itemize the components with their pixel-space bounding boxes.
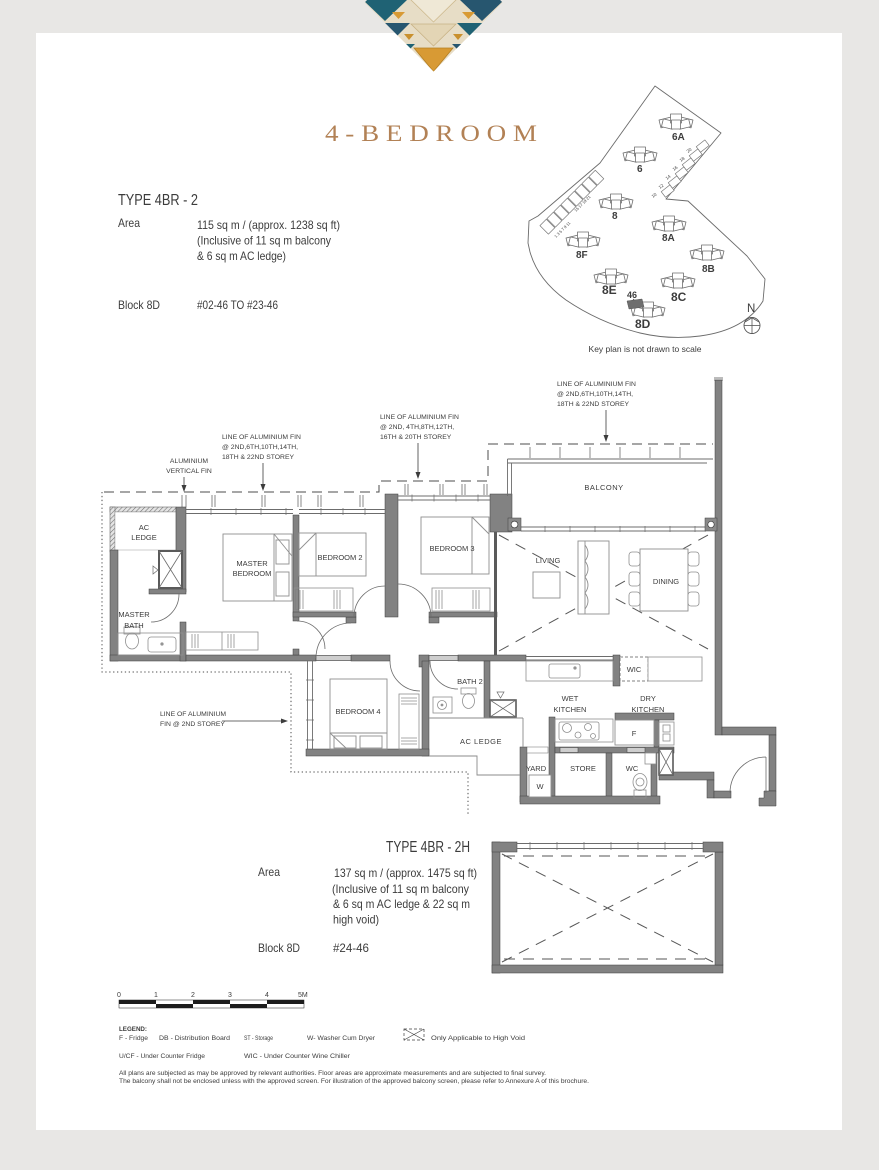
svg-text:F - Fridge: F - Fridge	[119, 1035, 148, 1042]
svg-text:AC: AC	[139, 523, 150, 532]
svg-text:AC LEDGE: AC LEDGE	[460, 737, 502, 746]
svg-text:Area: Area	[118, 216, 140, 230]
svg-text:W- Washer Cum Dryer: W- Washer Cum Dryer	[307, 1035, 376, 1042]
svg-text:2: 2	[191, 992, 195, 999]
svg-text:@ 2ND,6TH,10TH,14TH,: @ 2ND,6TH,10TH,14TH,	[557, 391, 633, 398]
svg-text:3: 3	[228, 992, 232, 999]
svg-text:@ 2ND, 4TH,8TH,12TH,: @ 2ND, 4TH,8TH,12TH,	[380, 424, 454, 431]
svg-text:8E: 8E	[602, 283, 617, 297]
svg-text:BEDROOM 2: BEDROOM 2	[317, 553, 362, 562]
svg-text:BATH: BATH	[124, 621, 143, 630]
svg-text:U/CF - Under Counter Fridge: U/CF - Under Counter Fridge	[119, 1053, 205, 1060]
svg-text:8: 8	[612, 211, 618, 222]
svg-text:BALCONY: BALCONY	[584, 483, 623, 492]
svg-text:ALUMINIUM: ALUMINIUM	[170, 458, 208, 465]
svg-text:BEDROOM 4: BEDROOM 4	[335, 707, 380, 716]
svg-text:MASTER: MASTER	[118, 610, 150, 619]
svg-text:1: 1	[154, 992, 158, 999]
svg-text:high void): high void)	[333, 913, 379, 927]
svg-text:DB - Distribution Board: DB - Distribution Board	[159, 1035, 230, 1042]
svg-text:4 - B E D R O O M: 4 - B E D R O O M	[325, 121, 537, 146]
svg-text:LIVING: LIVING	[536, 556, 561, 565]
svg-text:6: 6	[637, 164, 643, 175]
svg-text:8A: 8A	[662, 233, 675, 244]
svg-text:& 6 sq m AC ledge): & 6 sq m AC ledge)	[197, 249, 286, 263]
svg-text:LINE OF ALUMINIUM: LINE OF ALUMINIUM	[160, 711, 226, 718]
svg-text:& 6 sq m AC ledge & 22 sq m: & 6 sq m AC ledge & 22 sq m	[333, 897, 470, 911]
svg-text:LINE OF ALUMINIUM FIN: LINE OF ALUMINIUM FIN	[380, 414, 459, 421]
svg-text:N: N	[747, 303, 755, 315]
svg-text:KITCHEN: KITCHEN	[632, 705, 665, 714]
svg-text:TYPE 4BR - 2H: TYPE 4BR - 2H	[386, 839, 470, 856]
svg-text:8C: 8C	[671, 290, 687, 304]
svg-text:46: 46	[627, 290, 637, 300]
svg-text:(Inclusive of 11 sq m balcony: (Inclusive of 11 sq m balcony	[332, 882, 469, 896]
svg-text:Only Applicable to High Void: Only Applicable to High Void	[431, 1035, 525, 1042]
svg-text:18TH & 22ND STOREY: 18TH & 22ND STOREY	[557, 401, 629, 408]
svg-text:16: 16	[672, 164, 679, 171]
svg-text:KITCHEN: KITCHEN	[554, 705, 587, 714]
svg-text:18TH & 22ND STOREY: 18TH & 22ND STOREY	[222, 454, 294, 461]
svg-text:BATH 2: BATH 2	[457, 677, 483, 686]
svg-text:5M: 5M	[298, 992, 308, 999]
svg-text:115 sq m / (approx. 1238 sq ft: 115 sq m / (approx. 1238 sq ft)	[197, 218, 340, 232]
svg-text:BEDROOM 3: BEDROOM 3	[429, 544, 474, 553]
svg-text:F: F	[632, 729, 637, 738]
svg-text:8F: 8F	[576, 250, 588, 261]
svg-text:TYPE 4BR - 2: TYPE 4BR - 2	[118, 192, 198, 209]
svg-text:Area: Area	[258, 865, 280, 879]
svg-text:8D: 8D	[635, 317, 651, 331]
svg-text:Block 8D: Block 8D	[258, 941, 300, 955]
svg-text:WIC: WIC	[627, 665, 642, 674]
svg-text:137 sq m / (approx. 1475 sq ft: 137 sq m / (approx. 1475 sq ft)	[334, 866, 477, 880]
svg-text:LEGEND:: LEGEND:	[119, 1026, 147, 1033]
svg-text:WIC - Under Counter Wine Chill: WIC - Under Counter Wine Chiller	[244, 1053, 351, 1060]
svg-text:DINING: DINING	[653, 577, 679, 586]
svg-text:@ 2ND,6TH,10TH,14TH,: @ 2ND,6TH,10TH,14TH,	[222, 444, 298, 451]
svg-text:VERTICAL FIN: VERTICAL FIN	[166, 468, 212, 475]
svg-text:6A: 6A	[672, 132, 685, 143]
svg-text:Key plan is not drawn to scale: Key plan is not drawn to scale	[589, 344, 702, 354]
svg-text:12: 12	[658, 182, 665, 189]
svg-text:Block 8D: Block 8D	[118, 298, 160, 312]
svg-text:LEDGE: LEDGE	[131, 533, 156, 542]
svg-text:#24-46: #24-46	[333, 941, 369, 955]
svg-text:18: 18	[679, 155, 686, 162]
svg-text:4: 4	[265, 992, 269, 999]
svg-text:MASTER: MASTER	[236, 559, 268, 568]
svg-text:20: 20	[686, 146, 693, 153]
svg-text:The balcony shall not be enclo: The balcony shall not be enclosed unless…	[119, 1078, 589, 1085]
svg-text:0: 0	[117, 992, 121, 999]
svg-text:#02-46 TO #23-46: #02-46 TO #23-46	[197, 298, 278, 312]
svg-text:YARD: YARD	[526, 764, 547, 773]
svg-text:BEDROOM: BEDROOM	[233, 569, 272, 578]
svg-text:W: W	[536, 782, 544, 791]
svg-text:All plans are subjected as may: All plans are subjected as may be approv…	[119, 1070, 546, 1077]
svg-text:LINE OF ALUMINIUM FIN: LINE OF ALUMINIUM FIN	[557, 381, 636, 388]
svg-text:WC: WC	[626, 764, 639, 773]
svg-text:16TH & 20TH STOREY: 16TH & 20TH STOREY	[380, 434, 452, 441]
svg-text:ST - Storage: ST - Storage	[244, 1035, 273, 1042]
svg-text:DRY: DRY	[640, 694, 656, 703]
svg-text:(Inclusive of 11 sq m balcony: (Inclusive of 11 sq m balcony	[197, 234, 331, 248]
svg-text:FIN @ 2ND STOREY: FIN @ 2ND STOREY	[160, 721, 225, 728]
svg-text:10: 10	[651, 191, 658, 198]
svg-text:8B: 8B	[702, 264, 715, 275]
svg-text:WET: WET	[562, 694, 579, 703]
svg-text:LINE OF ALUMINIUM FIN: LINE OF ALUMINIUM FIN	[222, 434, 301, 441]
svg-text:STORE: STORE	[570, 764, 596, 773]
svg-text:14: 14	[665, 173, 672, 180]
